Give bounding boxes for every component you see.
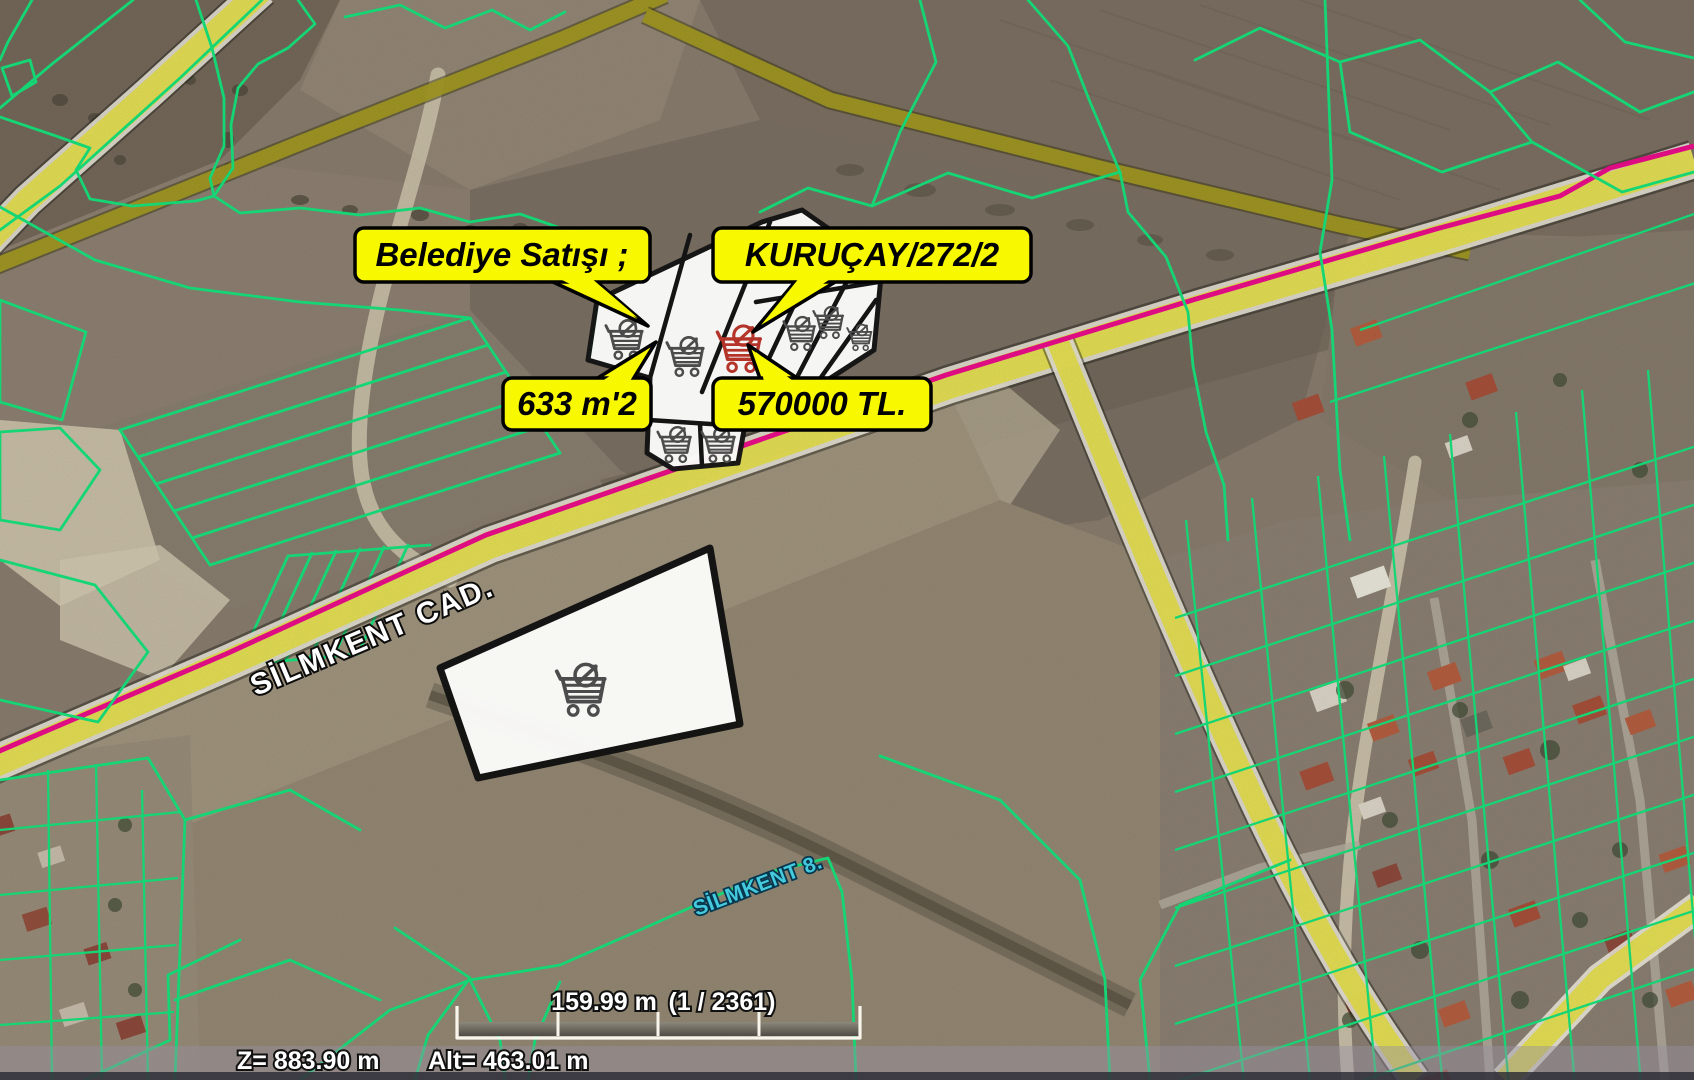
callout-area-label: 633 m'2	[517, 385, 637, 422]
scale-distance: 159.99 m	[551, 988, 657, 1016]
status-altitude: Alt= 463.01 m	[428, 1047, 589, 1075]
callout-price-label: 570000 TL.	[738, 385, 907, 422]
callout-sale-type-label: Belediye Satışı ;	[375, 236, 628, 273]
map-canvas[interactable]: SİLMKENT CAD. SİLMKENT 8. Belediye Satış…	[0, 0, 1694, 1080]
callout-parcel-code-label: KURUÇAY/272/2	[745, 236, 1000, 273]
status-elevation: Z= 883.90 m	[237, 1047, 379, 1075]
scale-ratio: (1 / 2361)	[668, 988, 775, 1016]
status-bar: Z= 883.90 m Alt= 463.01 m	[0, 1046, 1694, 1080]
map-viewport[interactable]: SİLMKENT CAD. SİLMKENT 8. Belediye Satış…	[0, 0, 1694, 1080]
noise-overlay	[0, 0, 1694, 1080]
